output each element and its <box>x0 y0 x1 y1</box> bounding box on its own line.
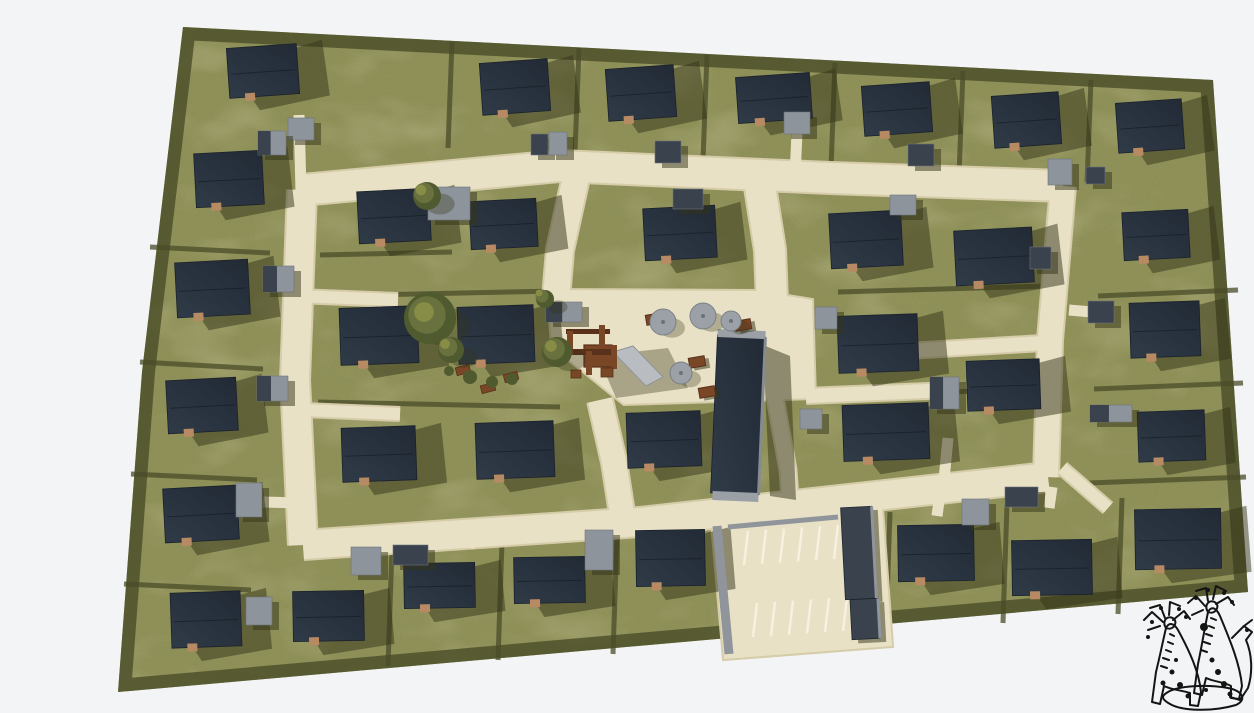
community-building <box>710 329 796 502</box>
chimney <box>847 263 857 272</box>
logo-spot <box>1210 658 1215 663</box>
chimney <box>1146 353 1156 361</box>
chimney <box>309 637 319 645</box>
chimney <box>879 131 890 140</box>
house-roof <box>636 529 706 586</box>
logo-spot <box>1200 623 1208 631</box>
community-building-roof <box>711 335 766 495</box>
chimney <box>486 244 496 253</box>
house-roof <box>293 590 365 641</box>
chimney <box>498 110 509 119</box>
chimney <box>193 313 203 322</box>
chimney <box>624 116 635 125</box>
logo-spot <box>1150 620 1154 624</box>
carport <box>841 506 883 604</box>
logo-spot <box>1221 681 1227 687</box>
chimney <box>359 477 369 485</box>
house-roof <box>1115 99 1184 153</box>
logo-spot <box>1161 681 1166 686</box>
chimney <box>1153 457 1163 465</box>
logo-spot <box>1245 628 1249 632</box>
hedge-line <box>320 252 452 255</box>
logo-spot <box>1177 682 1183 688</box>
chimney <box>1133 148 1144 157</box>
chimney <box>984 406 994 414</box>
logo-spot <box>1170 670 1175 675</box>
chimney <box>245 93 256 102</box>
logo-spot <box>1215 669 1221 675</box>
chimney <box>182 538 192 547</box>
house-roof <box>1134 508 1221 569</box>
garage <box>236 483 269 522</box>
house-roof <box>226 44 299 99</box>
logo-spot <box>1146 635 1150 639</box>
house-roof <box>1012 539 1093 595</box>
house-roof <box>479 59 550 116</box>
house-roof <box>605 65 676 122</box>
shrub <box>486 376 498 388</box>
chimney <box>644 463 654 471</box>
house-roof <box>861 82 932 137</box>
driveway <box>1049 487 1052 508</box>
house-roof <box>898 524 975 581</box>
house-roof <box>991 92 1061 149</box>
carport <box>850 598 886 644</box>
shrub <box>444 366 454 376</box>
chimney <box>915 577 925 585</box>
chimney <box>863 456 873 464</box>
chimney <box>530 599 540 607</box>
logo-spot <box>1222 591 1226 595</box>
road-top-road <box>302 166 1063 190</box>
road-spur-west-1 <box>296 296 398 300</box>
road-northeast-court <box>758 174 772 302</box>
logo-spot <box>1230 600 1234 604</box>
logo-spot <box>1186 694 1191 699</box>
rendering-stage <box>0 0 1254 713</box>
logo-spot <box>1174 658 1178 662</box>
logo-spot <box>1184 615 1188 619</box>
garage <box>1090 405 1139 427</box>
site-plan-rendering <box>0 0 1254 713</box>
chimney <box>1154 565 1164 573</box>
logo-spot <box>1177 607 1181 611</box>
chimney <box>375 239 385 248</box>
road-spur-west-2 <box>303 410 400 414</box>
chimney <box>1030 591 1040 599</box>
chimney <box>973 281 983 290</box>
garage <box>930 377 966 414</box>
chimney <box>420 604 430 612</box>
driveway <box>937 494 940 516</box>
chimney <box>1009 143 1020 152</box>
chimney <box>187 643 197 651</box>
logo-spot <box>1159 606 1163 610</box>
chimney <box>856 368 866 376</box>
logo-spot <box>1206 588 1210 592</box>
shrub <box>463 370 477 384</box>
chimney <box>755 118 766 127</box>
chimney <box>652 582 662 590</box>
driveway <box>469 527 472 548</box>
chimney <box>184 428 194 437</box>
shrub <box>506 373 518 385</box>
chimney <box>494 474 504 482</box>
logo-spot <box>1194 596 1198 600</box>
logo-spot <box>1228 692 1233 697</box>
chimney <box>1139 255 1149 264</box>
chimney <box>661 256 671 265</box>
road-left-road <box>295 190 303 545</box>
logo-spot <box>1204 688 1208 692</box>
chimney <box>211 202 221 211</box>
chimney <box>358 360 368 368</box>
garage <box>585 530 620 575</box>
